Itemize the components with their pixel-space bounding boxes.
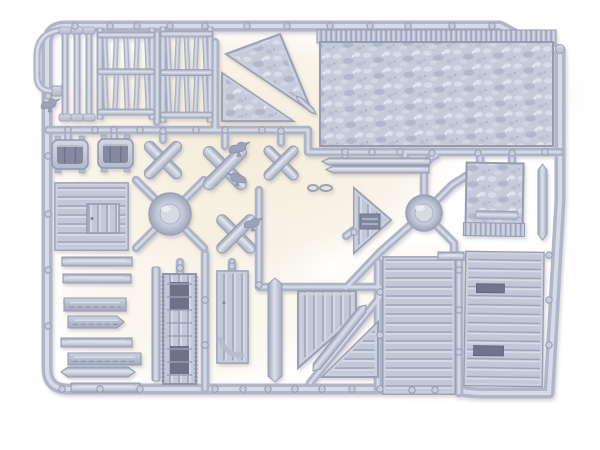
log-plank-a — [64, 298, 126, 311]
runner-end-cap — [556, 45, 565, 54]
connector-nub — [92, 127, 98, 133]
water-trough-a — [52, 136, 88, 173]
connector-nub — [351, 229, 357, 235]
connector-nub — [292, 386, 298, 392]
connector-nub — [377, 386, 383, 392]
connector-nub — [212, 386, 218, 392]
thin-plank-b — [326, 166, 429, 173]
connector-nub — [367, 23, 373, 29]
log-plank-c — [68, 353, 141, 365]
fence-posts — [59, 27, 95, 121]
door-with-brace — [217, 271, 248, 363]
connector-nub — [546, 297, 552, 303]
connector-nub — [456, 267, 462, 273]
connector-nub — [167, 23, 173, 29]
stub-plank — [438, 252, 464, 260]
connector-nub — [240, 386, 246, 392]
photo-of-plastic-sprue — [0, 0, 600, 450]
connector-nub — [349, 386, 355, 392]
connector-nub — [509, 150, 515, 156]
moulding-hub-left — [149, 193, 191, 235]
connector-nub — [59, 386, 65, 392]
connector-nub — [137, 127, 143, 133]
connector-nub — [265, 386, 271, 392]
plank-panel-large-b — [464, 251, 544, 386]
connector-nub — [229, 263, 235, 269]
connector-nub — [45, 153, 51, 159]
fence-gate-a — [97, 28, 155, 119]
water-trough-b — [98, 135, 133, 172]
connector-nub — [177, 265, 183, 271]
connector-nub — [137, 386, 143, 392]
connector-nub — [244, 23, 250, 29]
connector-nub — [45, 211, 51, 217]
connector-nub — [202, 23, 208, 29]
sprue-scene — [0, 0, 600, 450]
shed-wall-panel — [55, 183, 128, 250]
ladder — [163, 274, 196, 384]
thatch-roof-small — [463, 162, 525, 236]
connector-nub — [542, 149, 548, 155]
connector-nub — [107, 23, 113, 29]
connector-nub — [429, 150, 435, 156]
moulding-hub-right — [406, 195, 442, 231]
thin-plank-a — [322, 158, 430, 165]
connector-nub — [111, 127, 117, 133]
plank-panel-large-a — [383, 257, 455, 394]
plank-long-d — [71, 383, 140, 392]
connector-nub — [377, 332, 383, 338]
thatch-roof-large — [317, 30, 556, 146]
hook-foot — [52, 86, 62, 96]
connector-nub — [259, 127, 265, 133]
connector-nub — [65, 127, 71, 133]
connector-nub — [45, 267, 51, 273]
connector-nub — [278, 128, 284, 134]
support-beam — [152, 267, 160, 381]
connector-nub — [202, 297, 208, 303]
connector-nub — [546, 342, 552, 348]
connector-nub — [97, 386, 103, 392]
connector-nub — [202, 342, 208, 348]
connector-nub — [222, 127, 228, 133]
connector-nub — [377, 289, 383, 295]
connector-nub — [489, 23, 495, 29]
connector-nub — [160, 128, 166, 134]
connector-nub — [327, 23, 333, 29]
connector-nub — [405, 23, 411, 29]
connector-nub — [256, 282, 262, 288]
connector-nub — [456, 307, 462, 313]
plank-long-a — [62, 257, 132, 266]
log-plank-b — [68, 316, 124, 328]
connector-nub — [409, 387, 415, 393]
connector-nub — [546, 252, 552, 258]
connector-nub — [134, 23, 140, 29]
plank-pointed — [61, 367, 135, 377]
spear-plank — [268, 278, 282, 382]
connector-nub — [432, 387, 438, 393]
connector-nub — [45, 323, 51, 329]
fence-gate-b — [160, 27, 213, 122]
connector-nub — [72, 23, 78, 29]
connector-nub — [342, 149, 348, 155]
connector-nub — [319, 386, 325, 392]
connector-nub — [456, 349, 462, 355]
connector-nub — [475, 150, 481, 156]
plank-long-b — [63, 274, 131, 283]
connector-nub — [449, 23, 455, 29]
plank-long-c — [61, 338, 132, 347]
connector-nub — [193, 127, 199, 133]
connector-nub — [369, 149, 375, 155]
plank-vertical-right — [538, 164, 547, 240]
connector-nub — [284, 23, 290, 29]
connector-nub — [45, 93, 51, 99]
connector-nub — [397, 149, 403, 155]
